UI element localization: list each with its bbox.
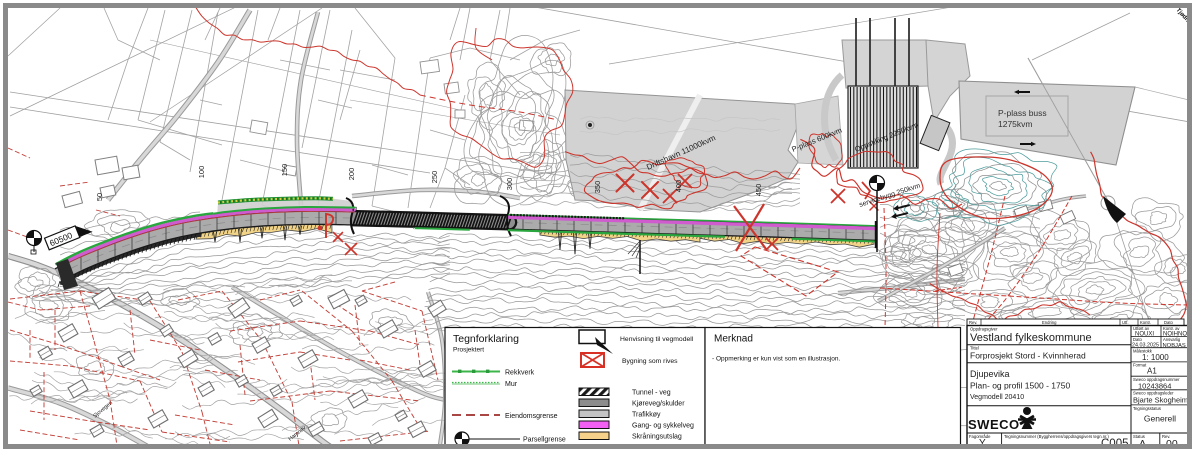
svg-text:Kontr. av: Kontr. av [1163, 326, 1180, 331]
svg-text:Gang- og sykkelveg: Gang- og sykkelveg [632, 423, 694, 430]
svg-text:Tegningsstatus: Tegningsstatus [1133, 406, 1161, 411]
svg-text:150: 150 [280, 164, 289, 177]
svg-text:Skråningsutslag: Skråningsutslag [632, 433, 682, 441]
svg-text:A1: A1 [1147, 367, 1157, 376]
svg-text:Bygning som rives: Bygning som rives [622, 358, 678, 365]
svg-text:Utført av: Utført av [1133, 326, 1150, 331]
svg-text:Prosjektert: Prosjektert [453, 347, 484, 354]
svg-text:Vestland fylkeskommune: Vestland fylkeskommune [970, 332, 1092, 344]
svg-text:350: 350 [593, 181, 602, 194]
svg-text:Dato: Dato [1164, 320, 1174, 325]
svg-text:Parsellgrense: Parsellgrense [523, 437, 566, 444]
svg-text:400: 400 [674, 180, 683, 193]
svg-text:Endring: Endring [1042, 320, 1057, 325]
svg-text:- Oppmerking er kun vist som e: - Oppmerking er kun vist som en illustra… [712, 356, 840, 363]
svg-text:Kontr.: Kontr. [1140, 320, 1151, 325]
svg-text:Generell: Generell [1144, 414, 1176, 424]
svg-text:SWECO: SWECO [968, 417, 1020, 432]
svg-text:50: 50 [95, 193, 104, 201]
svg-text:Plan- og profil 1500 - 1750: Plan- og profil 1500 - 1750 [970, 381, 1070, 391]
svg-text:Djupevika: Djupevika [970, 369, 1010, 379]
svg-text:Eiendomsgrense: Eiendomsgrense [505, 413, 558, 420]
svg-text:1: 1000: 1: 1000 [1142, 353, 1169, 362]
svg-text:Tunnel - veg: Tunnel - veg [632, 390, 671, 397]
svg-text:Oppdragsgiver: Oppdragsgiver [970, 327, 998, 332]
svg-text:10243864: 10243864 [1138, 381, 1171, 390]
svg-text:300: 300 [505, 178, 514, 191]
svg-text:Mur: Mur [505, 381, 518, 388]
svg-text:Format: Format [1133, 363, 1147, 368]
svg-text:Vegmodell 20410: Vegmodell 20410 [970, 394, 1024, 401]
svg-text:P-plass buss: P-plass buss [998, 108, 1047, 118]
svg-text:Henvisning til vegmodell: Henvisning til vegmodell [620, 336, 694, 343]
svg-text:Trafikkøy: Trafikkøy [632, 412, 661, 419]
svg-text:NOBJAS: NOBJAS [1163, 343, 1186, 349]
svg-text:Rekkverk: Rekkverk [505, 370, 535, 377]
svg-text:Rev.: Rev. [969, 320, 977, 325]
svg-text:Merknad: Merknad [714, 334, 753, 345]
svg-text:Tegningsnummer (Byggherrens/op: Tegningsnummer (Byggherrens/oppdragsgive… [1004, 434, 1109, 439]
svg-text:200: 200 [347, 168, 356, 181]
svg-text:250: 250 [430, 171, 439, 184]
svg-text:Bjarte Skogheim: Bjarte Skogheim [1133, 396, 1188, 405]
svg-text:Forprosjekt Stord - Kvinnherad: Forprosjekt Stord - Kvinnherad [970, 351, 1086, 361]
svg-text:Utf.: Utf. [1122, 320, 1129, 325]
svg-text:450: 450 [754, 184, 763, 197]
svg-text:1275kvm: 1275kvm [998, 119, 1033, 129]
svg-text:Ansvarlig: Ansvarlig [1163, 337, 1181, 342]
svg-text:Kjøreveg/skulder: Kjøreveg/skulder [632, 401, 685, 408]
svg-text:100: 100 [197, 166, 206, 179]
svg-text:Dato: Dato [1133, 337, 1143, 342]
svg-text:Tegnforklaring: Tegnforklaring [453, 333, 519, 345]
